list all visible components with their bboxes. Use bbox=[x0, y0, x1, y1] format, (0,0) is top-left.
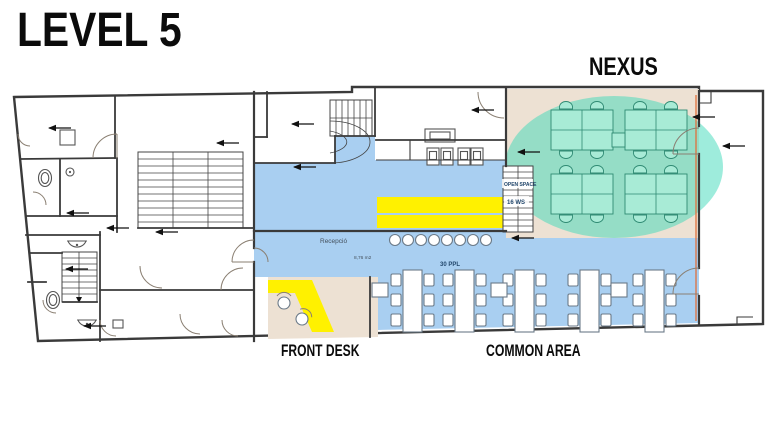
stool bbox=[442, 235, 453, 246]
stair-small bbox=[62, 252, 97, 303]
toilet-icon bbox=[39, 170, 52, 187]
reception-counter-bottom bbox=[377, 215, 503, 228]
common-area-zone-label: COMMON AREA bbox=[486, 342, 581, 360]
reception-label: Recepció bbox=[320, 238, 347, 245]
desk-side-table bbox=[612, 133, 625, 147]
stool bbox=[481, 235, 492, 246]
reception-area-label: 8,76 m2 bbox=[354, 255, 372, 261]
long-table bbox=[633, 270, 676, 332]
appliance bbox=[441, 148, 453, 165]
desk-bank bbox=[551, 166, 613, 223]
nexus-zone-label: NEXUS bbox=[589, 53, 658, 81]
side-table bbox=[611, 283, 627, 297]
open-space-capacity-label: 16 WS bbox=[507, 200, 525, 206]
storage-box bbox=[60, 130, 75, 145]
drain-icon bbox=[66, 168, 74, 176]
long-table bbox=[568, 270, 611, 332]
floor-plan: Recepció 8,76 m2 30 PPL OPEN SPACE 16 WS… bbox=[0, 0, 777, 437]
appliance bbox=[471, 148, 483, 165]
side-table bbox=[491, 283, 507, 297]
stool bbox=[468, 235, 479, 246]
open-space-label: OPEN SPACE bbox=[504, 182, 537, 188]
desk-bank bbox=[625, 102, 687, 159]
side-table bbox=[372, 283, 388, 297]
stool bbox=[416, 235, 427, 246]
page-title: LEVEL 5 bbox=[17, 4, 182, 57]
appliance bbox=[427, 148, 439, 165]
cabinet bbox=[113, 320, 123, 328]
stool bbox=[429, 235, 440, 246]
long-table bbox=[391, 270, 434, 332]
long-table bbox=[443, 270, 486, 332]
desk-bank bbox=[551, 102, 613, 159]
desk-bank bbox=[625, 166, 687, 223]
floor-plan-page: Recepció 8,76 m2 30 PPL OPEN SPACE 16 WS… bbox=[0, 0, 777, 437]
reception-counter-top bbox=[377, 197, 503, 213]
toilet-icon bbox=[47, 292, 60, 309]
common-capacity-label: 30 PPL bbox=[440, 262, 460, 268]
stool bbox=[403, 235, 414, 246]
front-desk-zone-label: FRONT DESK bbox=[281, 342, 360, 360]
long-table bbox=[503, 270, 546, 332]
stool bbox=[455, 235, 466, 246]
appliance bbox=[458, 148, 470, 165]
stool bbox=[390, 235, 401, 246]
nexus-highlight-ellipse bbox=[505, 96, 723, 238]
stair-main bbox=[138, 152, 243, 228]
